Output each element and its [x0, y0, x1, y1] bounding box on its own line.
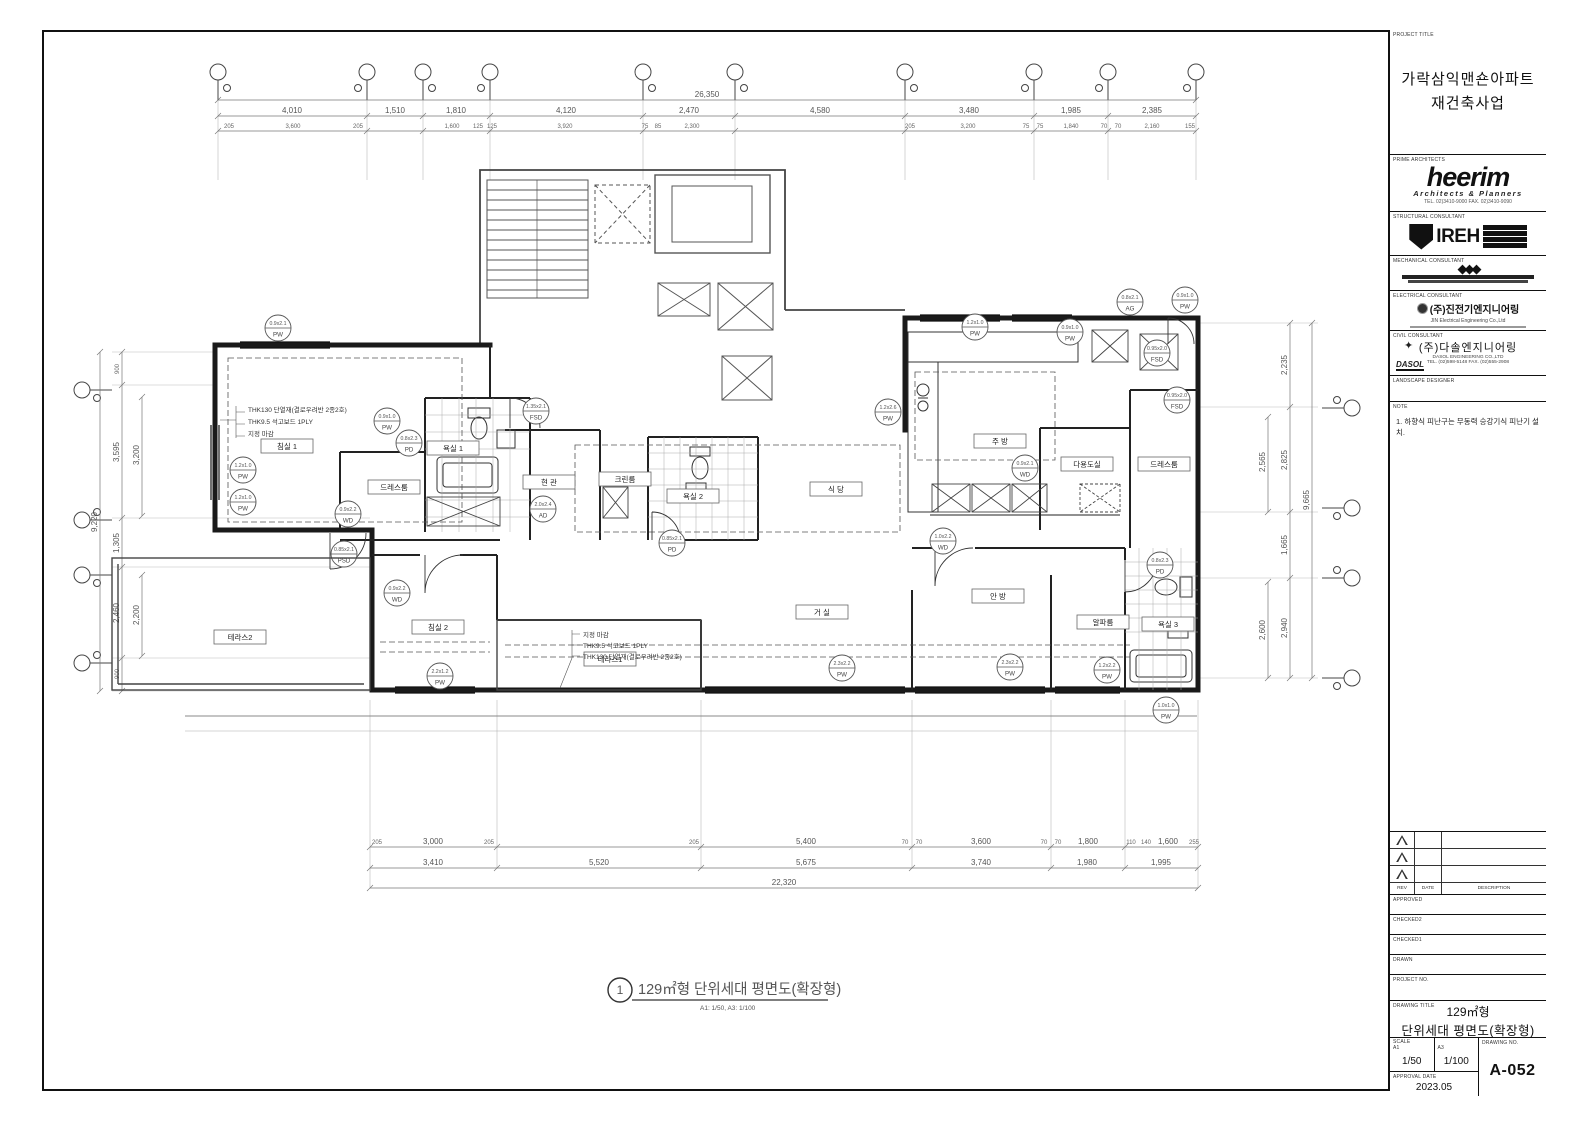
drawing-no-cell: DRAWING NO. A-052: [1479, 1038, 1546, 1096]
drawing-title-box: DRAWING TITLE 129㎡형 단위세대 평면도(확장형): [1390, 1001, 1546, 1038]
electrical-logo-icon: [1417, 303, 1428, 314]
checked1-box: CHECKED1: [1390, 935, 1546, 955]
mechanical-logo-icon: ◆◆◆: [1390, 264, 1546, 274]
rev-col-label: REV: [1390, 883, 1415, 894]
a1-label: A1: [1393, 1045, 1400, 1051]
drawing-no-value: A-052: [1489, 1062, 1535, 1080]
civil-label: CIVIL CONSULTANT: [1393, 333, 1443, 339]
drawing-no-label: DRAWING NO.: [1482, 1040, 1518, 1046]
scale-a1-value: 1/50: [1402, 1056, 1421, 1067]
approval-date-label: APPROVAL DATE: [1393, 1074, 1436, 1080]
drawing-title-line2: 단위세대 평면도(확장형): [1401, 1020, 1534, 1038]
dasol-logo-icon: ✦: [1404, 339, 1413, 352]
project-title-box: PROJECT TITLE 가락삼익맨숀아파트 재건축사업: [1390, 30, 1546, 155]
heerim-contact: TEL. 02)3410-9000 FAX. 02)3410-9090: [1390, 199, 1546, 205]
landscape-label: LANDSCAPE DESIGNER: [1393, 378, 1454, 384]
description-col-label: DESCRIPTION: [1442, 883, 1546, 894]
mechanical-consultant-box: MECHANICAL CONSULTANT ◆◆◆: [1390, 256, 1546, 291]
revision-row: [1390, 849, 1546, 866]
drawing-title-line1: 129㎡형: [1446, 1003, 1489, 1020]
landscape-designer-box: LANDSCAPE DESIGNER: [1390, 376, 1546, 402]
drawn-box: DRAWN: [1390, 955, 1546, 975]
approval-date-cell: APPROVAL DATE 2023.05: [1390, 1072, 1478, 1096]
dasol-wordmark: DASOL: [1396, 360, 1424, 371]
project-title-line2: 재건축사업: [1431, 92, 1505, 116]
ireh-logo: IREH: [1436, 226, 1479, 248]
scale-a3-cell: A31/100: [1434, 1038, 1479, 1071]
prime-architects-label: PRIME ARCHITECTS: [1393, 157, 1445, 163]
checked1-label: CHECKED1: [1393, 937, 1422, 943]
note-box: NOTE 1. 하향식 피난구는 무동력 승강기식 피난기 설치.: [1390, 402, 1546, 832]
drawing-sheet: 26,350 4,010 1,510 1,810 4,120 2,470 4,5…: [0, 0, 1588, 1123]
mechanical-text-bar: [1408, 280, 1528, 283]
mechanical-label: MECHANICAL CONSULTANT: [1393, 258, 1464, 264]
electrical-company: (주)진전기엔지니어링: [1430, 305, 1519, 316]
revision-triangle-icon: [1396, 869, 1408, 879]
ireh-korean-block: [1483, 225, 1527, 249]
checked2-label: CHECKED2: [1393, 917, 1422, 923]
civil-company: (주)다솔엔지니어링: [1390, 339, 1546, 355]
drawing-title-label: DRAWING TITLE: [1393, 1003, 1435, 1009]
approved-box: APPROVED: [1390, 895, 1546, 915]
title-block: PROJECT TITLE 가락삼익맨숀아파트 재건축사업 PRIME ARCH…: [1388, 30, 1546, 1091]
revision-triangle-icon: [1396, 835, 1408, 845]
revision-header: REV DATE DESCRIPTION: [1390, 883, 1546, 895]
revision-triangle-icon: [1396, 852, 1408, 862]
date-col-label: DATE: [1415, 883, 1442, 894]
electrical-consultant-box: ELECTRICAL CONSULTANT (주)진전기엔지니어링 JIN El…: [1390, 291, 1546, 331]
structural-consultant-box: STRUCTURAL CONSULTANT IREH: [1390, 212, 1546, 256]
prime-architects-box: PRIME ARCHITECTS heerim Architects & Pla…: [1390, 155, 1546, 212]
approval-date-value: 2023.05: [1416, 1082, 1452, 1093]
project-no-label: PROJECT NO.: [1393, 977, 1429, 983]
note-label: NOTE: [1393, 404, 1408, 410]
scale-a1-cell: A11/50: [1390, 1038, 1434, 1071]
approved-label: APPROVED: [1393, 897, 1422, 903]
heerim-logo: heerim: [1390, 165, 1546, 189]
checked2-box: CHECKED2: [1390, 915, 1546, 935]
drawn-label: DRAWN: [1393, 957, 1413, 963]
a3-label: A3: [1438, 1045, 1445, 1051]
electrical-address-bar: [1410, 326, 1526, 329]
scale-a3-value: 1/100: [1444, 1056, 1469, 1067]
sheet-border: [42, 30, 1546, 1091]
project-title-label: PROJECT TITLE: [1393, 32, 1434, 38]
project-title-line1: 가락삼익맨숀아파트: [1401, 68, 1534, 92]
electrical-company-en: JIN Electrical Engineering Co.,Ltd: [1390, 318, 1546, 324]
revision-table: REV DATE DESCRIPTION: [1390, 832, 1546, 895]
civil-consultant-box: CIVIL CONSULTANT ✦ (주)다솔엔지니어링 DASOL ENGI…: [1390, 331, 1546, 376]
electrical-label: ELECTRICAL CONSULTANT: [1393, 293, 1462, 299]
heerim-sub: Architects & Planners: [1390, 189, 1546, 198]
ireh-shield-icon: [1409, 224, 1433, 250]
revision-row: [1390, 866, 1546, 883]
revision-row: [1390, 832, 1546, 849]
scale-block: SCALE A11/50 A31/100 APPROVAL DATE 2023.…: [1390, 1038, 1546, 1096]
structural-label: STRUCTURAL CONSULTANT: [1393, 214, 1465, 220]
note-text: 1. 하향식 피난구는 무동력 승강기식 피난기 설치.: [1396, 416, 1542, 439]
project-no-box: PROJECT NO.: [1390, 975, 1546, 1001]
